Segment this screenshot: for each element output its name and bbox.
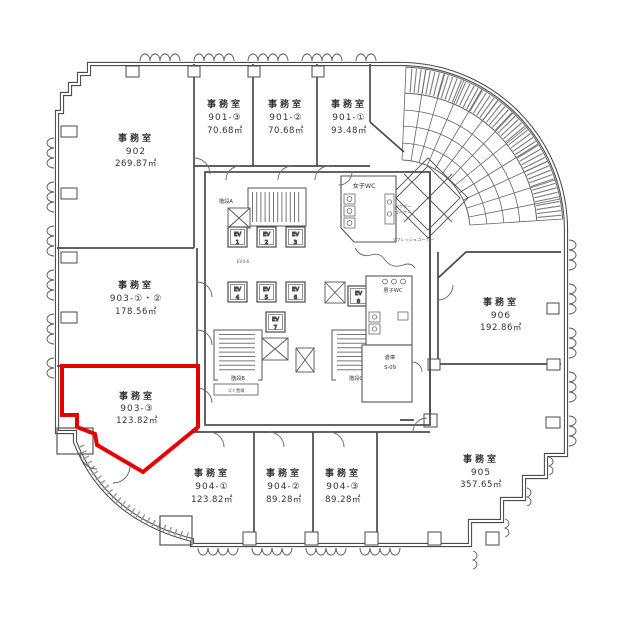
svg-text:事務室: 事務室	[118, 279, 154, 291]
storage-label: 倉庫	[385, 353, 395, 361]
svg-text:EV: EV	[272, 317, 279, 323]
svg-text:89.28㎡: 89.28㎡	[266, 495, 302, 505]
mens-wc: 男子WC	[366, 276, 412, 345]
svg-text:事務室: 事務室	[483, 296, 519, 308]
stair-c-label: 階段C	[349, 374, 363, 382]
svg-text:905: 905	[471, 468, 491, 478]
svg-text:192.86㎡: 192.86㎡	[480, 323, 522, 333]
svg-text:事務室: 事務室	[119, 390, 155, 402]
room-904-3-label[interactable]: 事務室 904-③ 89.28㎡	[325, 467, 361, 505]
svg-text:178.56㎡: 178.56㎡	[115, 307, 157, 317]
svg-text:7: 7	[274, 325, 277, 331]
svg-text:89.28㎡: 89.28㎡	[325, 495, 361, 505]
svg-text:EV: EV	[263, 232, 270, 238]
svg-text:1: 1	[236, 240, 239, 246]
svg-text:901-③: 901-③	[208, 113, 242, 123]
powder-corner-label-1: パウダー	[395, 203, 412, 210]
svg-text:EV: EV	[234, 232, 241, 238]
floor-plan-page: 階段A EV1 EV2 EV3 EV4 EV5 EV6 EV7 EV8 EV4-…	[0, 0, 630, 630]
svg-text:123.82㎡: 123.82㎡	[116, 416, 158, 426]
room-904-1-label[interactable]: 事務室 904-① 123.82㎡	[191, 467, 233, 505]
svg-text:EV: EV	[292, 232, 299, 238]
elevator-ev7: EV7	[266, 312, 285, 332]
svg-text:4: 4	[236, 295, 240, 301]
svg-text:EV: EV	[263, 287, 270, 293]
elevator-ev3: EV3	[286, 227, 305, 247]
stair-b-label: 階段B	[231, 374, 245, 382]
room-901-1-label[interactable]: 事務室 901-① 93.48㎡	[331, 98, 367, 136]
svg-text:357.65㎡: 357.65㎡	[460, 480, 502, 490]
svg-text:事務室: 事務室	[266, 467, 302, 479]
svg-text:事務室: 事務室	[268, 98, 304, 110]
svg-text:5: 5	[265, 295, 268, 301]
svg-text:2: 2	[265, 240, 268, 246]
svg-text:70.68㎡: 70.68㎡	[268, 126, 304, 136]
room-904-2-label[interactable]: 事務室 904-② 89.28㎡	[266, 467, 302, 505]
elevator-ev5: EV5	[257, 282, 276, 302]
womens-wc-label: 女子WC	[353, 182, 376, 190]
svg-text:904-①: 904-①	[195, 482, 229, 492]
stair-a-label: 階段A	[219, 197, 233, 205]
svg-text:903-③: 903-③	[120, 404, 154, 414]
svg-text:123.82㎡: 123.82㎡	[191, 495, 233, 505]
elevator-ev6: EV6	[286, 282, 305, 302]
svg-text:902: 902	[126, 147, 146, 157]
svg-text:93.48㎡: 93.48㎡	[331, 126, 367, 136]
elevator-ev1: EV1	[228, 227, 247, 247]
svg-text:904-②: 904-②	[267, 482, 301, 492]
svg-text:70.68㎡: 70.68㎡	[207, 126, 243, 136]
svg-text:903-①・②: 903-①・②	[110, 294, 163, 304]
svg-text:3: 3	[294, 240, 297, 246]
svg-text:901-②: 901-②	[269, 113, 303, 123]
svg-text:6: 6	[294, 295, 298, 301]
room-901-3-label[interactable]: 事務室 901-③ 70.68㎡	[207, 98, 243, 136]
ev-hall-label: EV4-6	[237, 259, 250, 264]
svg-text:EV: EV	[234, 287, 241, 293]
storage-room: 倉庫 S-09	[362, 345, 412, 402]
mens-wc-label: 男子WC	[383, 287, 403, 294]
svg-text:269.87㎡: 269.87㎡	[115, 159, 157, 169]
svg-text:EV: EV	[292, 287, 299, 293]
garbage-label: ゴミ置場	[228, 387, 246, 394]
svg-text:事務室: 事務室	[331, 98, 367, 110]
svg-text:904-③: 904-③	[326, 482, 360, 492]
room-903-3-label[interactable]: 事務室 903-③ 123.82㎡	[116, 390, 158, 426]
elevator-ev4: EV4	[228, 282, 247, 302]
elevator-ev2: EV2	[257, 227, 276, 247]
svg-text:8: 8	[357, 299, 361, 305]
floor-plan-canvas: 階段A EV1 EV2 EV3 EV4 EV5 EV6 EV7 EV8 EV4-…	[0, 0, 630, 630]
womens-wc: 女子WC	[341, 176, 396, 242]
svg-text:事務室: 事務室	[207, 98, 243, 110]
svg-text:事務室: 事務室	[463, 453, 499, 465]
svg-text:事務室: 事務室	[118, 132, 154, 144]
svg-text:901-①: 901-①	[332, 113, 366, 123]
storage-number: S-09	[384, 365, 396, 371]
room-901-2-label[interactable]: 事務室 901-② 70.68㎡	[268, 98, 304, 136]
svg-text:事務室: 事務室	[194, 467, 230, 479]
svg-text:事務室: 事務室	[325, 467, 361, 479]
svg-text:906: 906	[491, 311, 511, 321]
stair-b: 階段B ゴミ置場	[214, 330, 262, 395]
svg-text:EV: EV	[355, 291, 362, 297]
